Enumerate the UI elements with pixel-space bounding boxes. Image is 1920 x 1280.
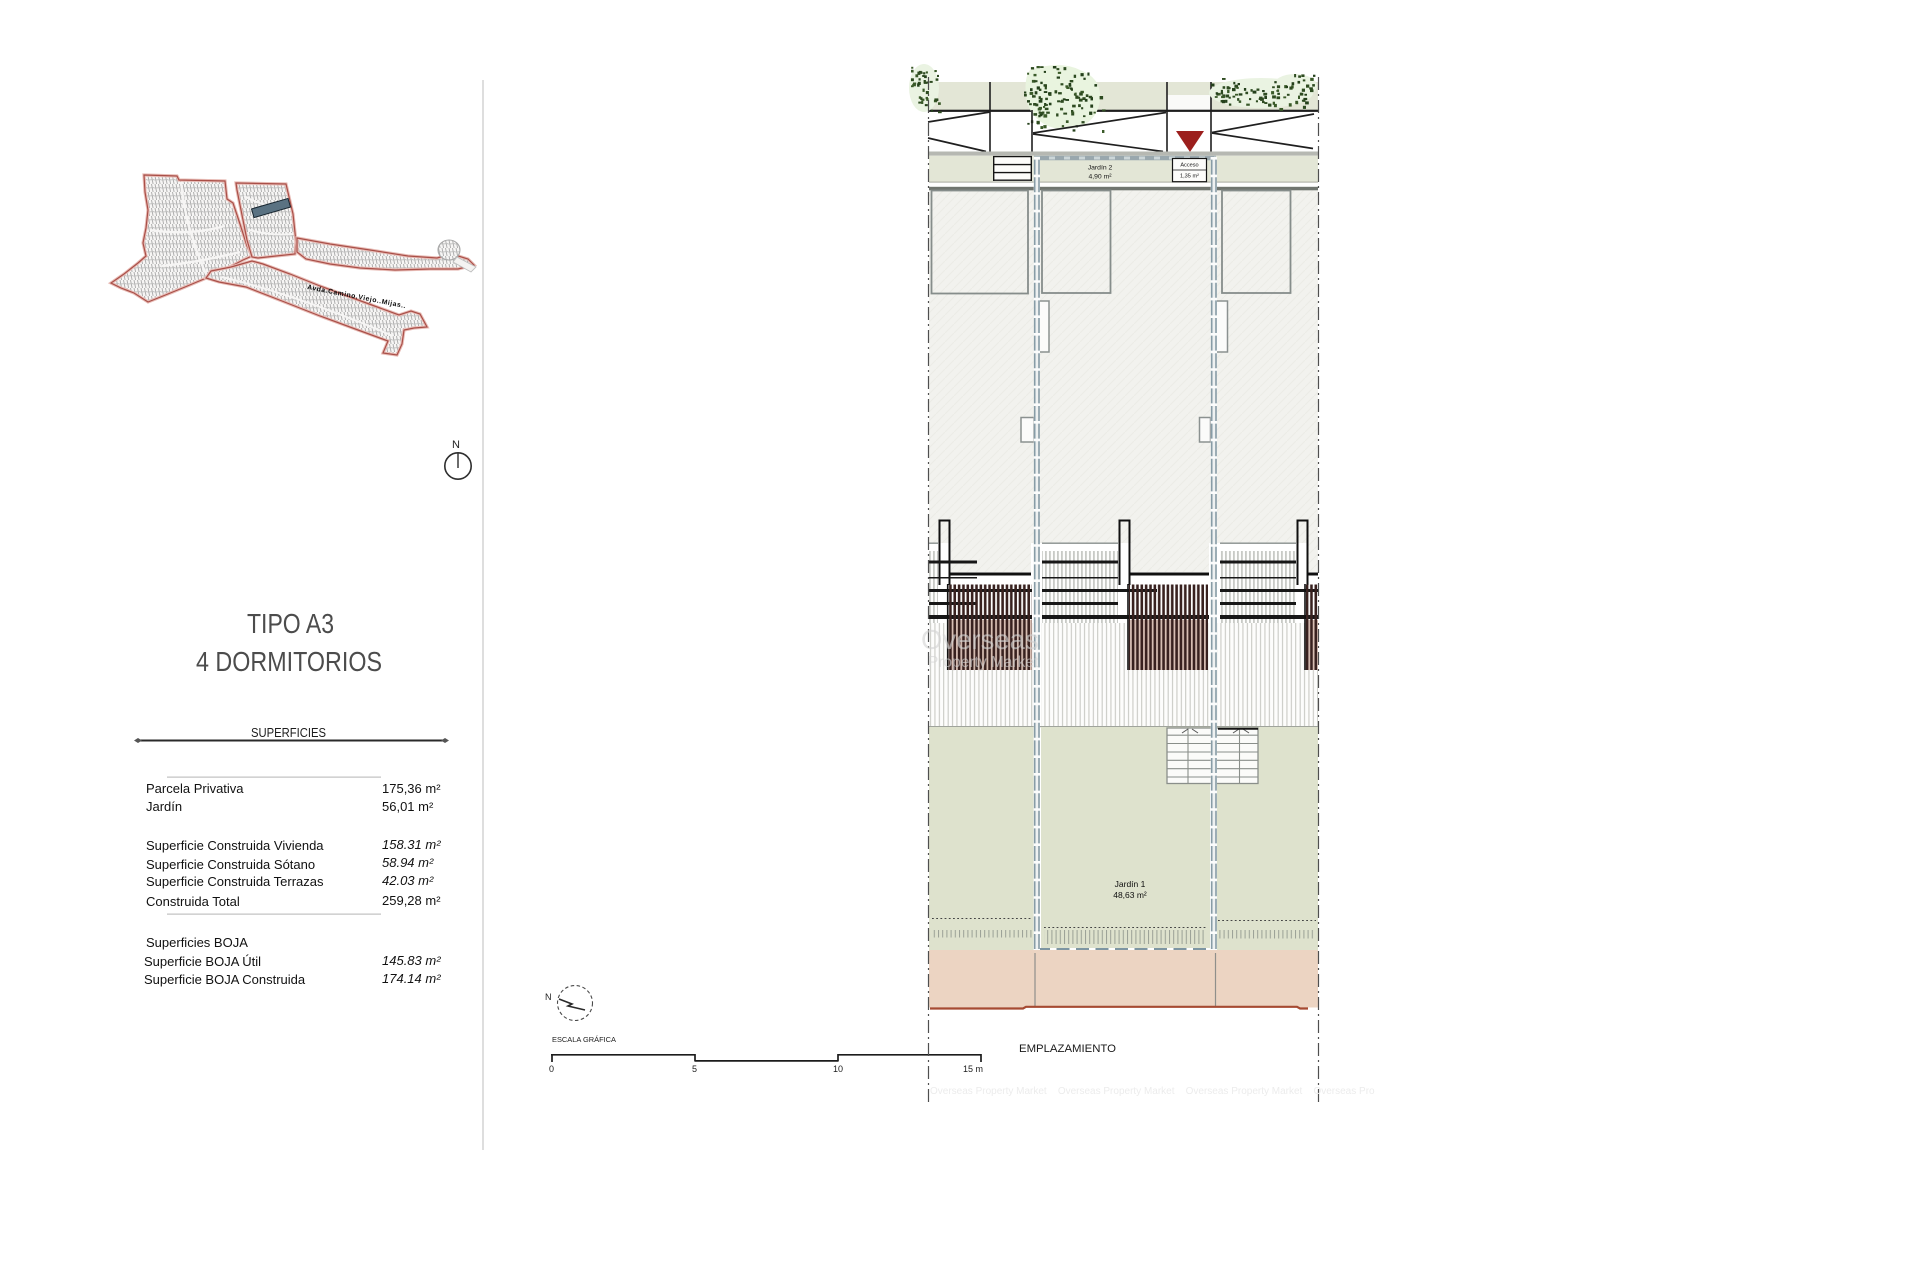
svg-text:Superficie Construida Terraz: Superficie Construida Terrazas (146, 874, 324, 889)
svg-text:Acceso: Acceso (1180, 163, 1198, 169)
svg-text:Superficie BOJA Útil: Superficie BOJA Útil (144, 954, 261, 969)
svg-text:175,36 m²: 175,36 m² (382, 781, 441, 796)
svg-text:4,90 m²: 4,90 m² (1088, 174, 1112, 181)
svg-text:56,01 m²: 56,01 m² (382, 799, 434, 814)
svg-text:EMPLAZAMIENTO: EMPLAZAMIENTO (1019, 1043, 1116, 1055)
svg-text:SUPERFICIES: SUPERFICIES (251, 726, 326, 740)
svg-text:Overseas: Overseas (921, 624, 1039, 655)
svg-text:4 DORMITORIOS: 4 DORMITORIOS (196, 646, 382, 677)
svg-text:Parcela Privativa: Parcela Privativa (146, 781, 244, 796)
svg-text:Property Market: Property Market (928, 654, 1039, 671)
svg-text:48,63 m²: 48,63 m² (1113, 890, 1147, 900)
svg-text:Construida Total: Construida Total (146, 894, 240, 909)
svg-text:145.83 m²: 145.83 m² (382, 953, 441, 968)
svg-text:10: 10 (833, 1064, 843, 1074)
svg-text:158.31 m²: 158.31 m² (382, 837, 441, 852)
svg-text:15 m: 15 m (963, 1064, 983, 1074)
svg-text:259,28 m²: 259,28 m² (382, 893, 441, 908)
svg-text:Jardín 2: Jardín 2 (1088, 165, 1113, 172)
svg-text:1,35 m²: 1,35 m² (1180, 174, 1199, 180)
svg-text:58.94 m²: 58.94 m² (382, 855, 434, 870)
svg-text:ESCALA GRÁFICA: ESCALA GRÁFICA (552, 1035, 616, 1044)
svg-text:174.14 m²: 174.14 m² (382, 971, 441, 986)
svg-text:5: 5 (692, 1064, 697, 1074)
svg-text:Overseas Property Market Ov: Overseas Property Market Overseas Proper… (930, 1086, 1375, 1097)
svg-text:Superficie BOJA Construida: Superficie BOJA Construida (144, 972, 306, 987)
svg-text:N: N (545, 992, 552, 1002)
svg-text:Jardín: Jardín (146, 799, 182, 814)
svg-text:Superficie Construida Sótano: Superficie Construida Sótano (146, 857, 315, 872)
svg-text:0: 0 (549, 1064, 554, 1074)
svg-text:Superficie Construida Vivien: Superficie Construida Vivienda (146, 838, 324, 853)
svg-text:N: N (452, 439, 460, 451)
svg-text:TIPO A3: TIPO A3 (247, 608, 334, 639)
svg-text:42.03 m²: 42.03 m² (382, 873, 434, 888)
svg-text:Jardín 1: Jardín 1 (1115, 879, 1146, 889)
svg-text:Superficies BOJA: Superficies BOJA (146, 935, 248, 950)
